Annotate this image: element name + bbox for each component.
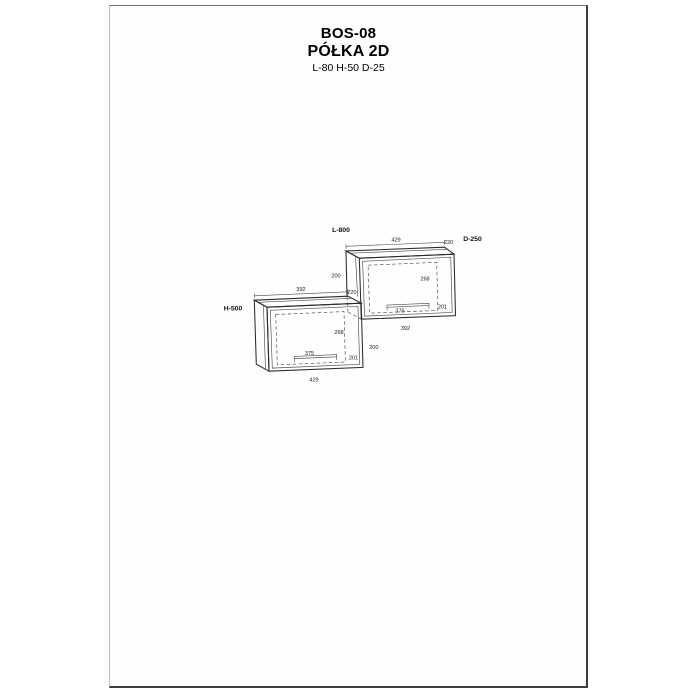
dim-left-top-width: 392 [296, 287, 305, 293]
depth-label: D-250 [463, 236, 482, 243]
dim-right-side-lower: 220 [347, 290, 356, 296]
door-handle [295, 355, 337, 359]
dim-left-door-height: 268 [334, 330, 343, 336]
dim-left-side-lower: 200 [369, 345, 378, 351]
dim-left-door-bottom: 201 [349, 356, 358, 362]
left-face-top-edge [346, 251, 359, 258]
dim-right-top-width: 429 [391, 237, 400, 243]
left-face-inner-line [263, 305, 265, 369]
dim-right-door-bottom: 201 [438, 305, 447, 311]
left-face-bottom-edge-hidden [348, 312, 361, 319]
screenshot-stage: BOS-08 PÓŁKA 2D L-80 H-50 D-25 L-800 D-2… [0, 0, 700, 700]
front-face-inner-frame [270, 306, 359, 368]
dim-right-top-depth: 220 [444, 240, 453, 246]
dim-left-bottom-width: 429 [309, 378, 318, 384]
door-handle [387, 303, 429, 307]
dim-right-side-upper: 200 [331, 274, 340, 280]
furniture-diagram: L-800 D-250 H-500 429 220 200 220 268 37… [0, 0, 700, 700]
height-label: H-500 [224, 305, 243, 312]
dim-left-handle-width: 375 [305, 351, 314, 357]
top-face-inner-line [258, 298, 352, 302]
length-label: L-800 [332, 227, 350, 234]
dim-right-handle-width: 375 [395, 308, 404, 314]
dim-right-door-height: 268 [420, 277, 429, 283]
left-cabinet [254, 296, 363, 371]
dim-right-bottom-width: 392 [401, 326, 410, 332]
